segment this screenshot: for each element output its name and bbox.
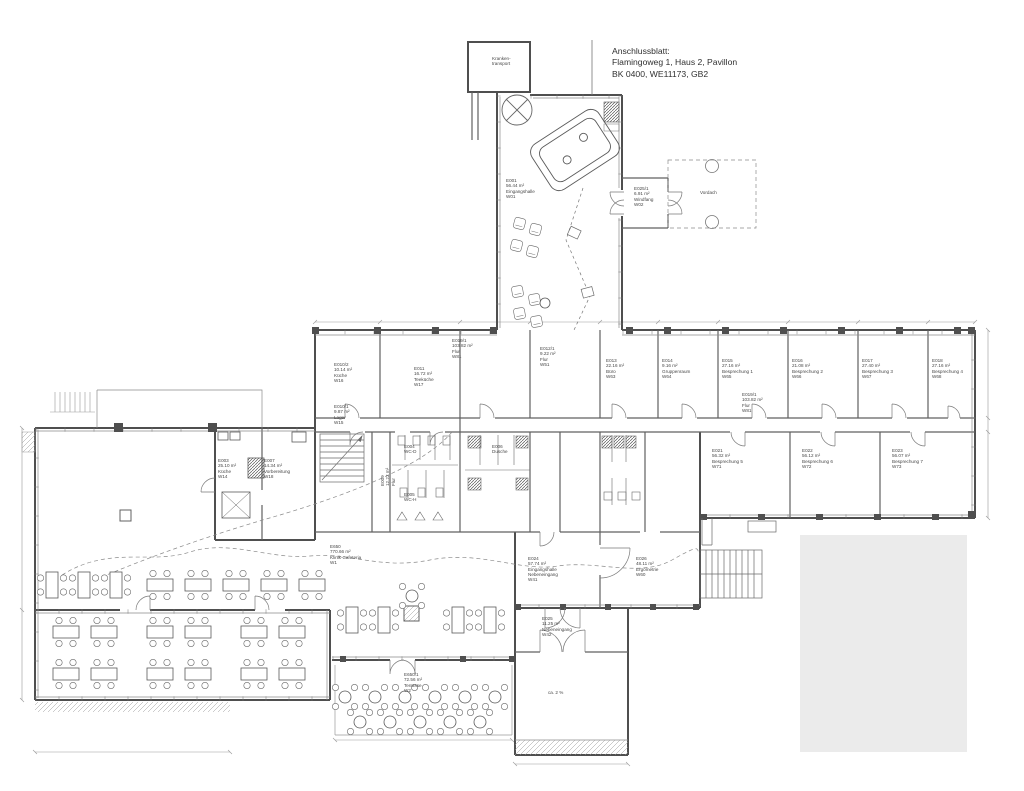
table-top [91, 626, 117, 638]
chair [475, 610, 481, 616]
chair [360, 610, 366, 616]
chair [92, 575, 98, 581]
chair [69, 589, 75, 595]
dining-table-vertical [110, 572, 122, 598]
chair [202, 617, 208, 623]
table-top [185, 668, 211, 680]
dining-table-horizontal [185, 579, 211, 591]
chair [381, 703, 387, 709]
chair [422, 703, 428, 709]
chair [94, 617, 100, 623]
round-table [339, 691, 351, 703]
chair [264, 570, 270, 576]
chair [56, 659, 62, 665]
chair [498, 624, 504, 630]
chair [108, 640, 114, 646]
title-line-3: BK 0400, WE11173, GB2 [612, 69, 737, 80]
chair [456, 728, 462, 734]
canopy-column [706, 160, 719, 173]
canopy-vordach [668, 160, 756, 229]
chair [150, 659, 156, 665]
chair [282, 640, 288, 646]
table-top [279, 626, 305, 638]
table-top [185, 626, 211, 638]
chair [226, 593, 232, 599]
chair [188, 640, 194, 646]
round-table [474, 716, 486, 728]
chair [471, 684, 477, 690]
chair [362, 703, 368, 709]
chair [482, 703, 488, 709]
chair [443, 610, 449, 616]
lobby-armchair [510, 239, 523, 252]
dining-table-horizontal [241, 626, 267, 638]
chair [94, 682, 100, 688]
lobby-armchair [526, 245, 539, 258]
chair [282, 659, 288, 665]
exterior-steps [702, 518, 776, 545]
chair [202, 682, 208, 688]
ramp-hatch [515, 740, 628, 755]
lobby-table [540, 298, 550, 308]
dining-table-horizontal [185, 668, 211, 680]
chair [244, 682, 250, 688]
chair [70, 640, 76, 646]
dining-table-vertical [378, 607, 390, 633]
chair [351, 684, 357, 690]
round-column-symbol [502, 95, 532, 125]
chair [337, 624, 343, 630]
chair [188, 659, 194, 665]
table-top [53, 626, 79, 638]
table-top [241, 668, 267, 680]
chair [337, 610, 343, 616]
chair [108, 617, 114, 623]
edge-hatch [35, 702, 230, 712]
chair [452, 684, 458, 690]
chair [377, 709, 383, 715]
chair [456, 709, 462, 715]
chair [467, 709, 473, 715]
hall-columns [120, 510, 419, 621]
table-top [378, 607, 390, 633]
chair [240, 593, 246, 599]
dining-table-horizontal [147, 668, 173, 680]
chair [377, 728, 383, 734]
chair [150, 593, 156, 599]
chair [258, 659, 264, 665]
table-top [346, 607, 358, 633]
chair [164, 617, 170, 623]
table-top [241, 626, 267, 638]
pavilion-equipment-box [604, 102, 619, 122]
chair [399, 602, 405, 608]
chair [244, 617, 250, 623]
chair [164, 593, 170, 599]
chair [258, 617, 264, 623]
title-line-1: Anschlussblatt: [612, 46, 737, 57]
chair [482, 684, 488, 690]
chair [426, 709, 432, 715]
table-top [452, 607, 464, 633]
round-table [406, 590, 418, 602]
dining-table-horizontal [53, 626, 79, 638]
main-staircase [320, 434, 364, 482]
chair [258, 640, 264, 646]
chair [296, 617, 302, 623]
chair [316, 593, 322, 599]
chair [264, 593, 270, 599]
chair [258, 682, 264, 688]
round-table [459, 691, 471, 703]
wc-fixtures [392, 435, 640, 520]
chair [381, 684, 387, 690]
chair [399, 583, 405, 589]
zone-dashed-curves [62, 432, 700, 580]
chair [332, 703, 338, 709]
table-top [53, 668, 79, 680]
lobby-armchair [513, 217, 526, 230]
chair [296, 659, 302, 665]
chair [475, 624, 481, 630]
chair [164, 570, 170, 576]
round-table [369, 691, 381, 703]
chair [282, 682, 288, 688]
chair [486, 728, 492, 734]
chair [302, 593, 308, 599]
table-top [223, 579, 249, 591]
dining-table-horizontal [279, 626, 305, 638]
lobby-armchair [511, 285, 524, 298]
chair [411, 703, 417, 709]
chair [366, 728, 372, 734]
chair [422, 684, 428, 690]
chair [351, 703, 357, 709]
chair [70, 682, 76, 688]
round-table [384, 716, 396, 728]
chair [411, 684, 417, 690]
chair [124, 575, 130, 581]
chair [347, 728, 353, 734]
chair [101, 589, 107, 595]
chair [70, 617, 76, 623]
chair [467, 728, 473, 734]
chair [202, 593, 208, 599]
round-table [429, 691, 441, 703]
round-table [444, 716, 456, 728]
canopy-outline [668, 160, 756, 228]
dining-table-vertical [452, 607, 464, 633]
chair [60, 589, 66, 595]
title-block: Anschlussblatt: Flamingoweg 1, Haus 2, P… [612, 46, 737, 80]
round-table [414, 716, 426, 728]
chair [108, 659, 114, 665]
chair [37, 589, 43, 595]
chair [296, 682, 302, 688]
dining-table-horizontal [147, 626, 173, 638]
chair [441, 684, 447, 690]
chair [92, 589, 98, 595]
chair [244, 640, 250, 646]
dining-table-horizontal [241, 668, 267, 680]
chair [471, 703, 477, 709]
chair [94, 640, 100, 646]
dining-table-vertical [346, 607, 358, 633]
canopy-column [706, 216, 719, 229]
chair [150, 640, 156, 646]
chair [396, 728, 402, 734]
chair [278, 570, 284, 576]
walk-route-dashed [566, 188, 590, 330]
floor-plan-page: Kranken- transportE001 56.44 m² Eingangs… [0, 0, 1024, 791]
chair [407, 709, 413, 715]
chair [418, 602, 424, 608]
chair [498, 610, 504, 616]
chair [332, 684, 338, 690]
chair [392, 703, 398, 709]
lobby-armchair [513, 307, 526, 320]
chair [392, 610, 398, 616]
chair [407, 728, 413, 734]
chair [70, 659, 76, 665]
chair [501, 684, 507, 690]
chair [366, 709, 372, 715]
chair [466, 610, 472, 616]
chair [69, 575, 75, 581]
chair [150, 617, 156, 623]
chair [486, 709, 492, 715]
chair [226, 570, 232, 576]
table-top [91, 668, 117, 680]
chair [188, 570, 194, 576]
chair [466, 624, 472, 630]
round-table [354, 716, 366, 728]
chair [392, 684, 398, 690]
dining-table-horizontal [53, 668, 79, 680]
chair [441, 703, 447, 709]
chair [392, 624, 398, 630]
chair [302, 570, 308, 576]
chair [94, 659, 100, 665]
chair [437, 709, 443, 715]
dining-table-vertical [78, 572, 90, 598]
table-top [46, 572, 58, 598]
table-top [299, 579, 325, 591]
lobby-armchair [528, 293, 541, 306]
floor-plan-drawing [0, 0, 1024, 791]
chair [316, 570, 322, 576]
round-table [399, 691, 411, 703]
dining-table-horizontal [91, 668, 117, 680]
chair [150, 570, 156, 576]
lobby-armchair [529, 223, 542, 236]
round-table [489, 691, 501, 703]
table-top [484, 607, 496, 633]
table-top [147, 579, 173, 591]
chair [360, 624, 366, 630]
chair [426, 728, 432, 734]
chair [452, 703, 458, 709]
table-top [279, 668, 305, 680]
chair [240, 570, 246, 576]
chair [202, 640, 208, 646]
chair [56, 640, 62, 646]
chair [282, 617, 288, 623]
route-chairs [567, 226, 594, 298]
dining-table-horizontal [147, 579, 173, 591]
table-top [147, 668, 173, 680]
chair [418, 583, 424, 589]
chair [164, 659, 170, 665]
chair [443, 624, 449, 630]
dining-table-horizontal [185, 626, 211, 638]
chair [437, 728, 443, 734]
chair [124, 589, 130, 595]
title-line-2: Flamingoweg 1, Haus 2, Pavillon [612, 57, 737, 68]
chair [37, 575, 43, 581]
dining-table-vertical [46, 572, 58, 598]
chair [164, 682, 170, 688]
chair [56, 617, 62, 623]
chair [188, 682, 194, 688]
table-top [110, 572, 122, 598]
chair [347, 709, 353, 715]
side-staircase [700, 550, 762, 598]
dining-table-horizontal [279, 668, 305, 680]
chair [202, 570, 208, 576]
lobby-armchair [530, 315, 543, 328]
table-top [261, 579, 287, 591]
chair [244, 659, 250, 665]
chair [56, 682, 62, 688]
chair [362, 684, 368, 690]
chair [296, 640, 302, 646]
chair [188, 593, 194, 599]
chair [108, 682, 114, 688]
chair [101, 575, 107, 581]
dining-table-horizontal [261, 579, 287, 591]
chair [369, 624, 375, 630]
chair [396, 709, 402, 715]
chair [188, 617, 194, 623]
wall-stub-hatch [22, 432, 35, 452]
chair [501, 703, 507, 709]
dining-table-vertical [484, 607, 496, 633]
chair [60, 575, 66, 581]
chair [278, 593, 284, 599]
chair [369, 610, 375, 616]
table-top [78, 572, 90, 598]
chair [202, 659, 208, 665]
dining-table-horizontal [299, 579, 325, 591]
table-top [147, 626, 173, 638]
dining-table-horizontal [223, 579, 249, 591]
gray-mask-area [800, 535, 967, 752]
dining-table-horizontal [91, 626, 117, 638]
chair [150, 682, 156, 688]
table-top [185, 579, 211, 591]
chair [164, 640, 170, 646]
